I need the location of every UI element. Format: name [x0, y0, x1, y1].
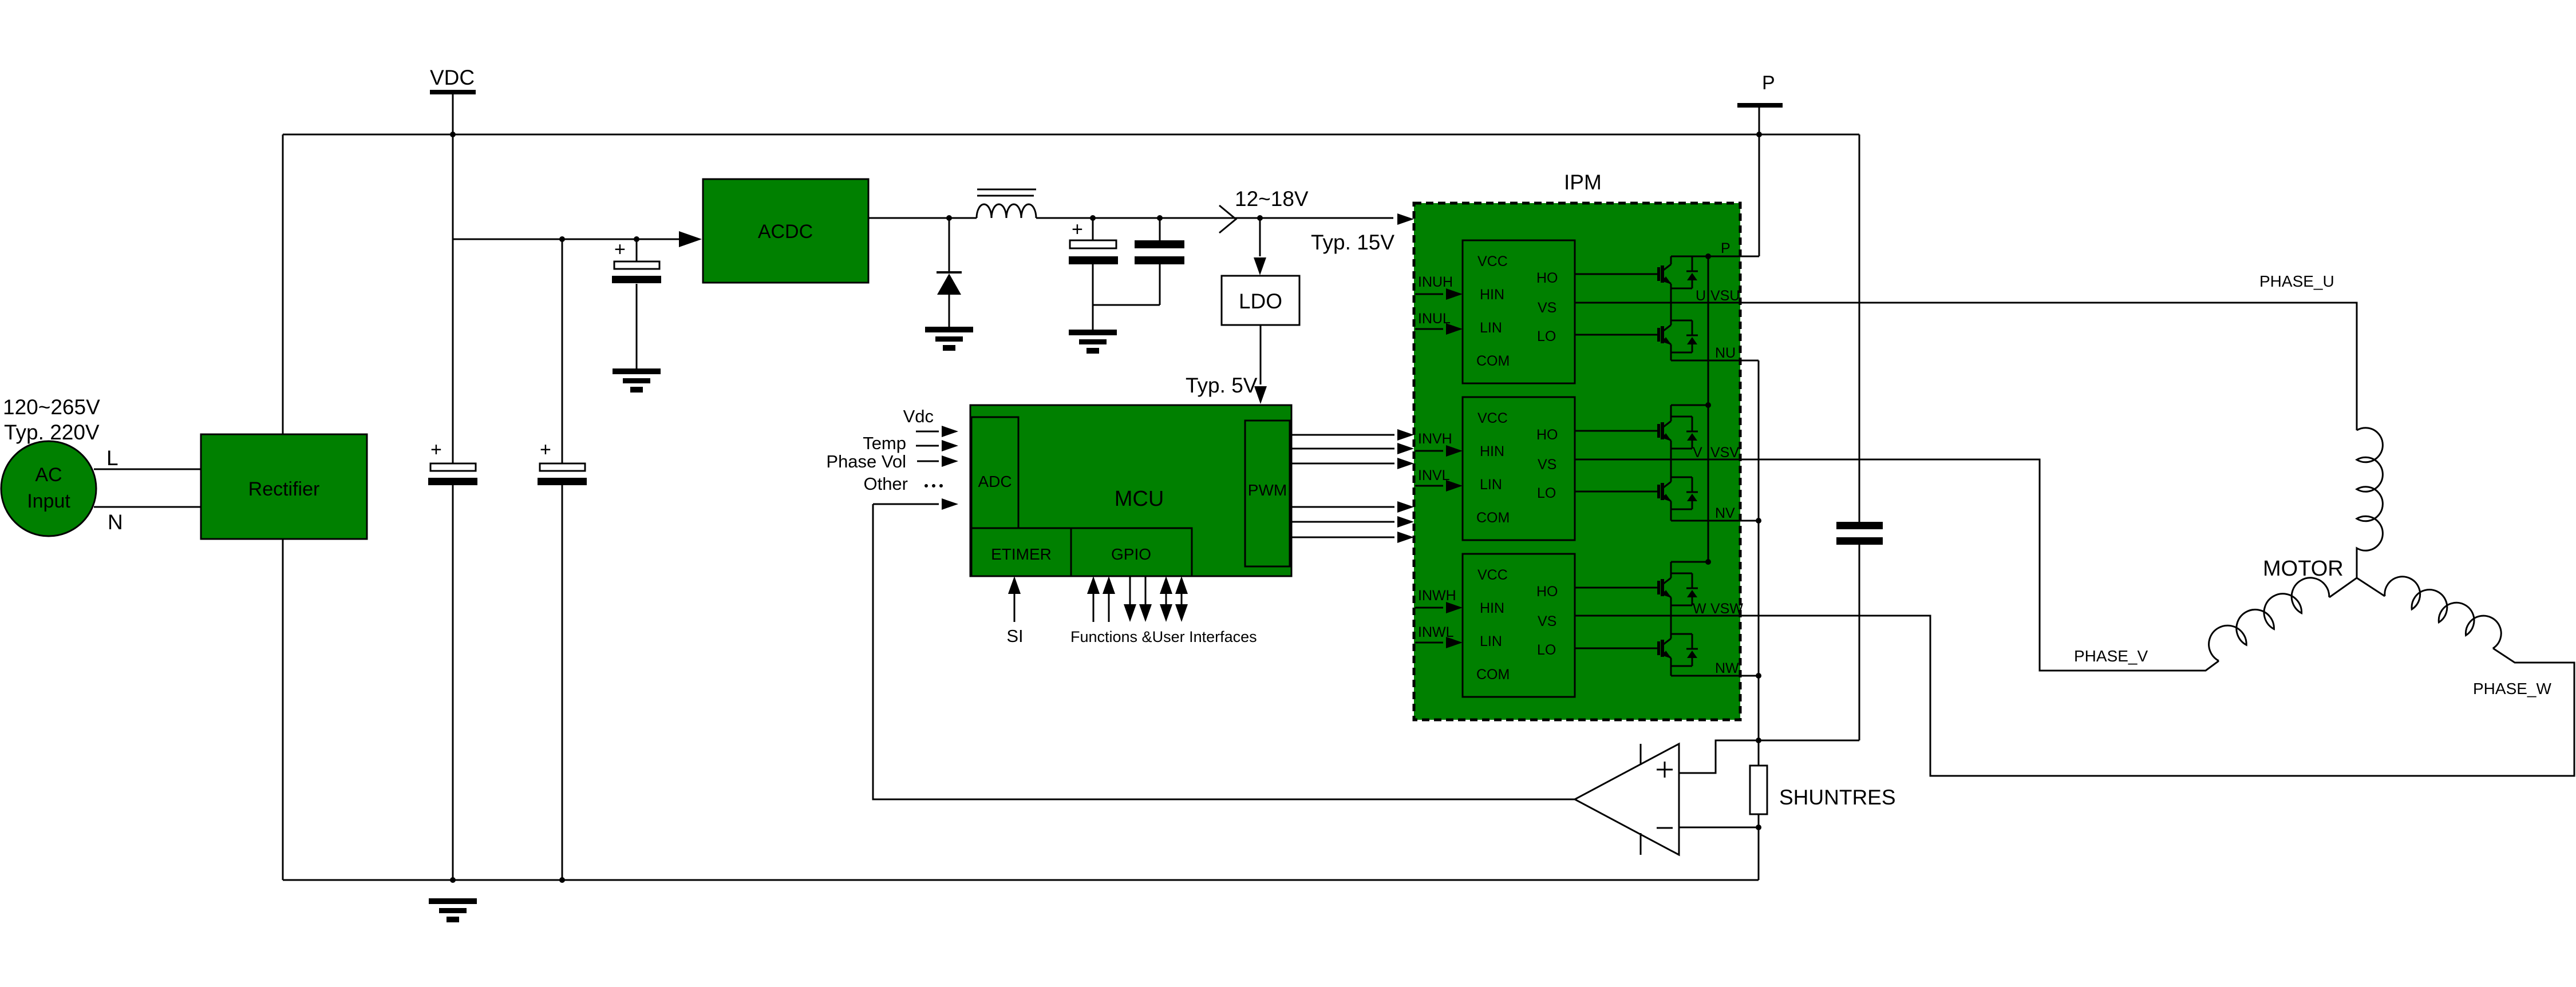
svg-text:Phase Vol: Phase Vol [826, 451, 906, 471]
svg-text:P: P [1721, 240, 1730, 256]
svg-text:LIN: LIN [1480, 477, 1502, 493]
svg-text:LIN: LIN [1480, 320, 1502, 336]
svg-text:Temp: Temp [863, 433, 906, 453]
svg-text:+: + [1072, 219, 1083, 240]
svg-text:VSW: VSW [1710, 601, 1743, 617]
svg-text:Other: Other [863, 474, 908, 494]
svg-text:HO: HO [1536, 427, 1558, 443]
svg-text:MOTOR: MOTOR [2263, 557, 2344, 581]
svg-text:INWH: INWH [1418, 588, 1456, 604]
svg-text:Typ. 15V: Typ. 15V [1311, 231, 1394, 254]
svg-text:ADC: ADC [978, 473, 1012, 490]
svg-text:HIN: HIN [1480, 443, 1504, 459]
svg-text:COM: COM [1476, 353, 1510, 369]
svg-text:L: L [106, 446, 118, 470]
svg-text:HIN: HIN [1480, 600, 1504, 616]
svg-text:VDC: VDC [430, 66, 475, 89]
svg-text:PHASE_V: PHASE_V [2074, 647, 2148, 665]
svg-text:HIN: HIN [1480, 287, 1504, 303]
svg-text:INWL: INWL [1418, 624, 1454, 640]
svg-text:V: V [1693, 445, 1702, 461]
svg-text:VSU: VSU [1710, 288, 1740, 304]
svg-text:W: W [1693, 601, 1706, 617]
svg-text:HO: HO [1536, 584, 1558, 600]
svg-text:Vdc: Vdc [903, 406, 934, 426]
svg-text:INUH: INUH [1418, 274, 1453, 290]
svg-text:N: N [108, 510, 123, 534]
svg-text:Input: Input [27, 490, 70, 512]
svg-text:GPIO: GPIO [1111, 545, 1151, 563]
svg-text:PHASE_U: PHASE_U [2259, 272, 2334, 290]
svg-text:SI: SI [1006, 626, 1023, 646]
svg-text:LO: LO [1537, 485, 1556, 501]
svg-text:120~265V: 120~265V [3, 395, 100, 419]
svg-text:LO: LO [1537, 642, 1556, 658]
svg-text:AC: AC [35, 464, 62, 486]
svg-text:INVL: INVL [1418, 467, 1450, 483]
svg-text:Functions &User Interfaces: Functions &User Interfaces [1070, 628, 1257, 645]
svg-text:NU: NU [1715, 345, 1736, 361]
svg-text:VSV: VSV [1710, 445, 1739, 461]
svg-text:+: + [430, 439, 442, 461]
svg-text:IPM: IPM [1564, 171, 1602, 194]
svg-text:12~18V: 12~18V [1235, 187, 1309, 211]
svg-text:LIN: LIN [1480, 633, 1502, 649]
svg-text:COM: COM [1476, 667, 1510, 683]
svg-text:+: + [614, 239, 626, 260]
svg-text:Typ. 5V: Typ. 5V [1186, 374, 1258, 397]
svg-text:NV: NV [1715, 505, 1735, 521]
svg-text:SHUNTRES: SHUNTRES [1779, 786, 1896, 809]
svg-text:VS: VS [1538, 300, 1556, 316]
svg-text:PHASE_W: PHASE_W [2473, 680, 2551, 697]
svg-text:LDO: LDO [1239, 290, 1282, 313]
svg-text:ACDC: ACDC [758, 221, 813, 243]
svg-text:VS: VS [1538, 457, 1556, 473]
svg-text:Rectifier: Rectifier [248, 478, 320, 500]
svg-text:PWM: PWM [1248, 481, 1287, 499]
svg-text:VCC: VCC [1477, 410, 1508, 426]
svg-text:VCC: VCC [1477, 253, 1508, 269]
svg-text:NW: NW [1715, 660, 1739, 676]
svg-text:+: + [540, 439, 551, 461]
svg-text:P: P [1762, 72, 1775, 94]
svg-text:HO: HO [1536, 270, 1558, 286]
svg-text:VS: VS [1538, 613, 1556, 629]
svg-text:INUL: INUL [1418, 311, 1451, 327]
svg-text:INVH: INVH [1418, 431, 1452, 447]
svg-text:VCC: VCC [1477, 567, 1508, 583]
svg-text:LO: LO [1537, 328, 1556, 344]
svg-text:COM: COM [1476, 510, 1510, 526]
svg-text:ETIMER: ETIMER [991, 545, 1052, 563]
svg-text:U: U [1696, 288, 1706, 304]
svg-text:MCU: MCU [1115, 487, 1164, 511]
